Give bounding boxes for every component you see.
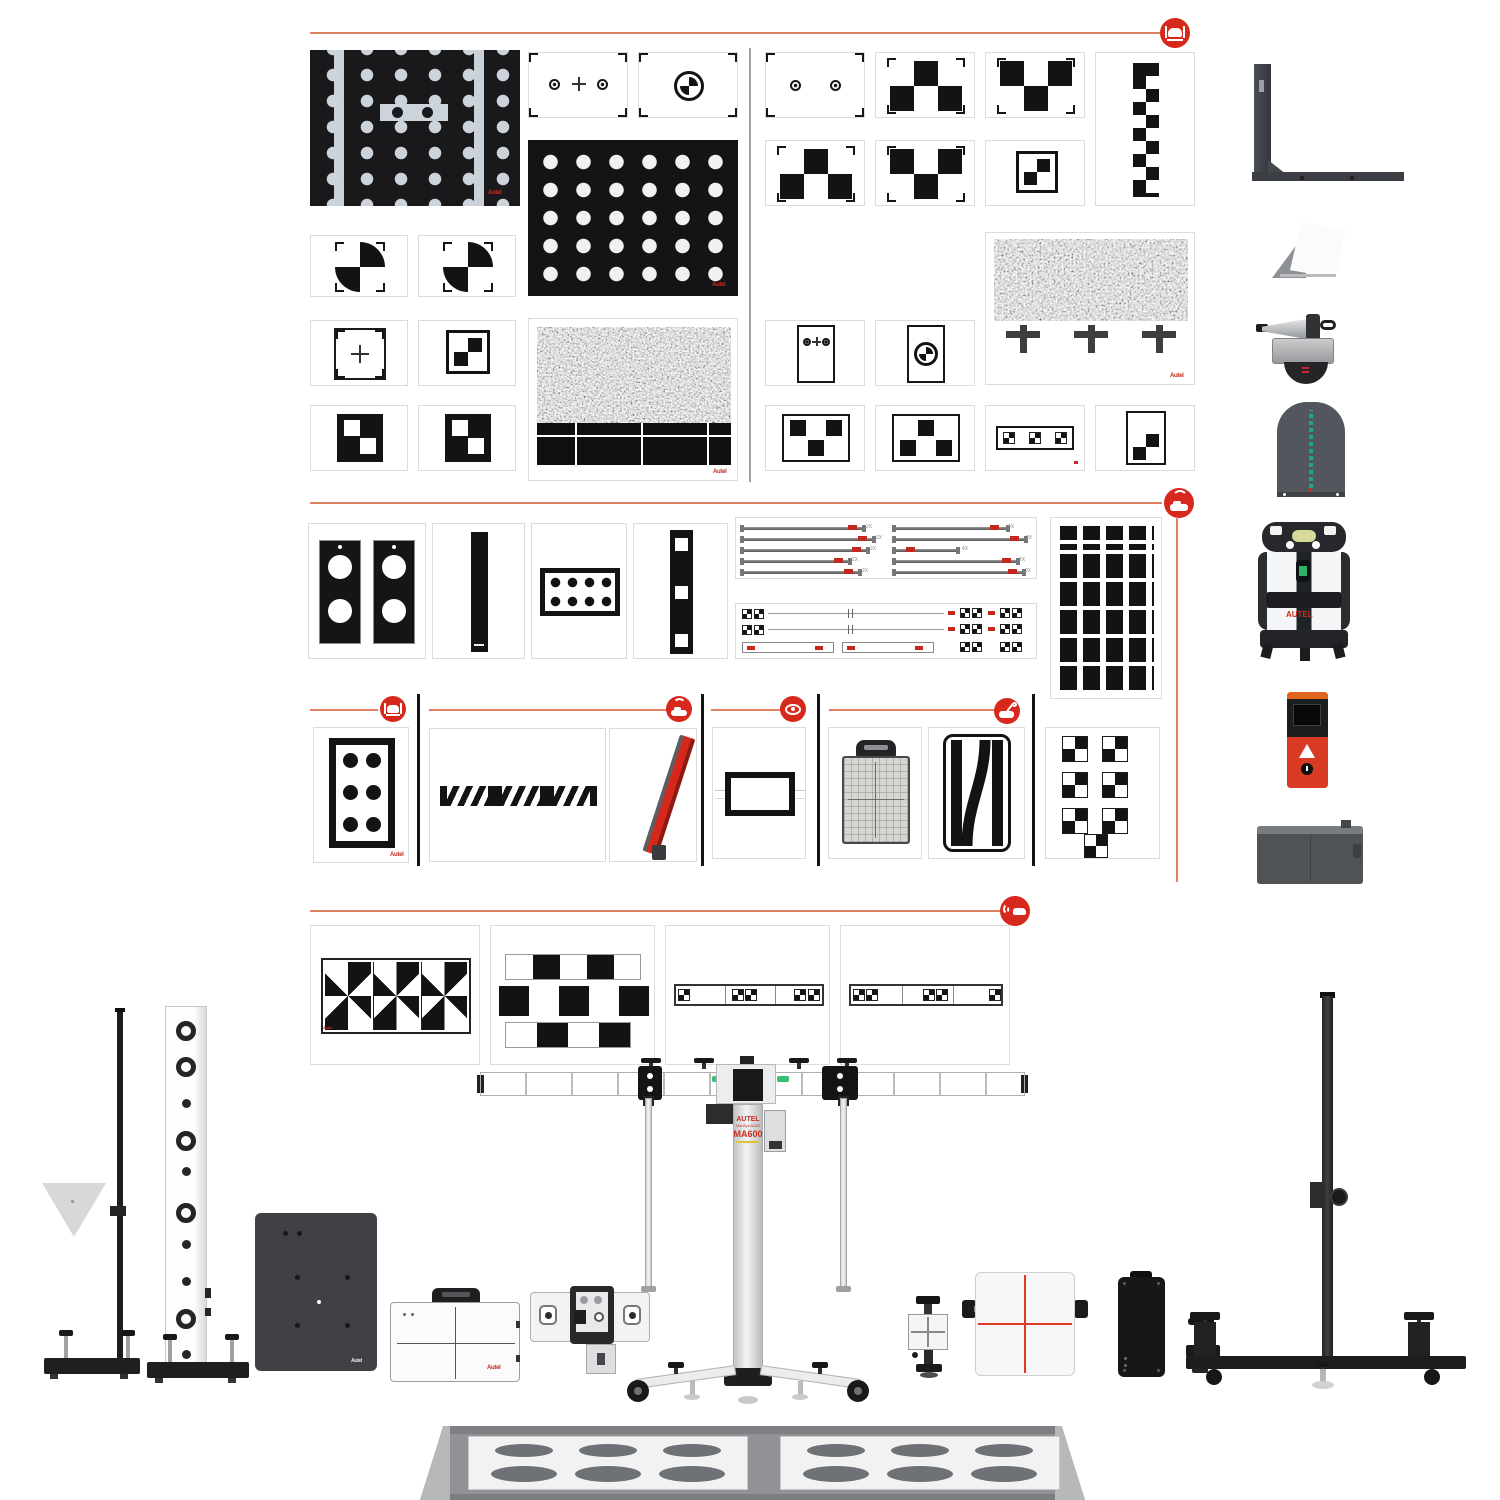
brand-mark: Autel [323,1026,332,1030]
double-circle-plates [308,523,426,659]
base-plate [147,1362,249,1378]
curve-stripe-target [928,727,1025,859]
car-camera-icon [380,696,406,722]
noise-triple-cross-target: Autel [985,232,1195,385]
checkerboard-3x2 [985,52,1085,118]
mat-panel [468,1436,748,1490]
hanging-rod [645,1098,652,1288]
meter-screen [1293,704,1321,726]
end-clamp [1194,1322,1216,1358]
rod [896,571,1022,574]
green-button [1299,566,1307,576]
pole [1322,996,1333,1356]
rod [896,549,956,552]
curve-stripe [960,740,992,846]
grid-block-target [1050,517,1162,699]
red-reflector-panel [609,728,697,862]
two-dot-target [765,52,865,118]
rod [744,527,862,530]
checkerboard-3x2 [765,140,865,206]
leveling-foot [1312,1381,1334,1389]
rod-qty: 4X [962,547,968,552]
sub-line-4 [829,709,994,711]
noise-grid-target: Autel [528,318,738,481]
brand-mark: Autel [351,1359,362,1364]
black-bar-target [432,523,525,659]
car-camera-icon [1160,18,1190,48]
section-line-avm [310,910,1000,912]
checker-dash-strip [665,925,830,1065]
three-square-down-target [765,405,865,471]
power-button [1301,763,1313,775]
rod [744,538,872,541]
rod-qty: 2X [876,536,882,541]
car-sound-icon [1000,896,1030,926]
zigzag-checker-strip [1095,52,1195,206]
adjust-knob [1330,1188,1348,1206]
divider [817,694,820,866]
telescoping-rods-panel: 2X 2X 2X 2X 2X 4X 2X 4X 2X 2X [735,517,1037,579]
six-dot-target: Autel [313,727,409,863]
rod-qty: 2X [862,569,868,574]
oval-floor-mat [420,1426,1085,1500]
rod [896,560,1016,563]
measuring-tapes-panel [735,603,1037,659]
center-bar [380,104,448,121]
caster [1206,1369,1222,1385]
pole [117,1012,123,1360]
brand-mark: Autel [487,1365,501,1371]
icon-glyph [1168,28,1182,37]
end-clamp [1408,1322,1430,1358]
rod-qty: 2X [866,525,872,530]
dot-grid [310,50,520,206]
caster [847,1380,869,1402]
dot-grid [534,148,732,288]
section-line-radar [310,502,1162,504]
teal-guide-line [1309,410,1313,488]
checker-2x2-frame [985,140,1085,206]
rod-qty: 2X [1025,569,1031,574]
column [733,1104,763,1370]
brand-mark: Autel [390,852,404,858]
cross-target [310,320,408,386]
clamp [110,1206,126,1216]
pillar [165,1006,207,1366]
plus-mark [1142,325,1176,353]
rod [744,560,848,563]
car-radar-icon [1164,488,1194,518]
rod [896,538,1024,541]
sub-line-3 [711,709,781,711]
brand-mark: Autel [713,469,727,475]
metal-calibration-plate: Autel [255,1213,377,1371]
mini-checkerboard-target [1095,405,1195,471]
triple-checker-strip [985,405,1085,471]
eight-dot-target [531,523,627,659]
sub-line-2 [429,709,667,711]
noise-pattern [537,327,731,423]
base-leg [760,1365,860,1389]
plus-mark [1074,325,1108,353]
cross-plate [908,1314,948,1350]
base-plate [44,1358,140,1374]
dot-matrix-board-2: Autel [528,140,738,296]
corner-checker-target [418,405,516,471]
rectangle-frame-target [712,727,806,859]
pinwheel-target-strip: Autel [310,925,480,1065]
rod-qty: 2X [870,547,876,552]
three-square-up-target [875,405,975,471]
caster [1424,1369,1440,1385]
corner-checker-target [310,405,408,471]
leveling-foot [738,1396,758,1404]
checker-brick-strips [490,925,655,1065]
grid-band [537,423,731,465]
ma600-brand: AUTEL [729,1116,767,1124]
car-service-icon [994,698,1020,724]
portrait-two-dot-target [765,320,865,386]
rod [744,571,858,574]
section-line-camera [310,32,1162,34]
plus-mark [1006,325,1040,353]
checkerboard-3x2 [875,52,975,118]
ma600-label: AUTEL MaxiSys ADAS MA600 [729,1116,767,1143]
grid-board [842,756,910,844]
laser-level-brand: AUTEL [1286,611,1313,619]
quadrant-target [310,235,408,297]
adas-calibration-kit-collage: Autel Autel [0,0,1500,1500]
slide-clamp [638,1066,662,1100]
divider [749,48,751,482]
caster [627,1380,649,1402]
side-knob [1074,1300,1088,1318]
checker-dash-strip-2 [840,925,1010,1065]
two-dot-cross-target [528,52,628,118]
reflector-foot [652,845,666,860]
brand-mark: Autel [488,190,502,196]
brand-mark: Autel [1170,373,1184,379]
checker-frame-target [418,320,516,386]
hanging-rod [840,1098,847,1288]
grid-board-with-handle [828,727,922,859]
mat-panel [780,1436,1060,1490]
divider [417,694,420,866]
leveling-foot [684,1394,700,1400]
sub-line-1 [310,709,378,711]
slide-clamp [822,1066,858,1100]
rod-qty: 2X [1019,558,1025,563]
eye-icon [780,696,806,722]
car-radar-icon [666,696,692,722]
brand-mark: Autel [712,282,726,288]
three-square-bar [633,523,728,659]
base-leg [636,1365,736,1389]
noise-pattern [994,239,1188,321]
center-head [716,1064,776,1104]
ma600-model: MA600 [729,1129,767,1139]
roundel-target [638,52,738,118]
checkerboard-3x2 [875,140,975,206]
rod-qty: 4X [1008,525,1014,530]
divider [701,694,704,866]
rod-qty: 2X [1026,536,1032,541]
leveling-foot [792,1394,808,1400]
brand-mark [1074,461,1078,464]
level-vial [777,1076,789,1082]
laser-warning-icon [1299,744,1315,758]
rod-qty: 2X [852,558,858,563]
dot-matrix-board: Autel [310,50,520,206]
triangle-plate [42,1183,106,1237]
section-vline [1176,517,1178,882]
portrait-roundel-target [875,320,975,386]
scattered-checker-target [1045,727,1160,859]
striped-bar-target [429,728,606,862]
quadrant-target [418,235,516,297]
red-crosshair-h [978,1323,1072,1325]
rod [744,549,866,552]
divider [1032,694,1035,866]
